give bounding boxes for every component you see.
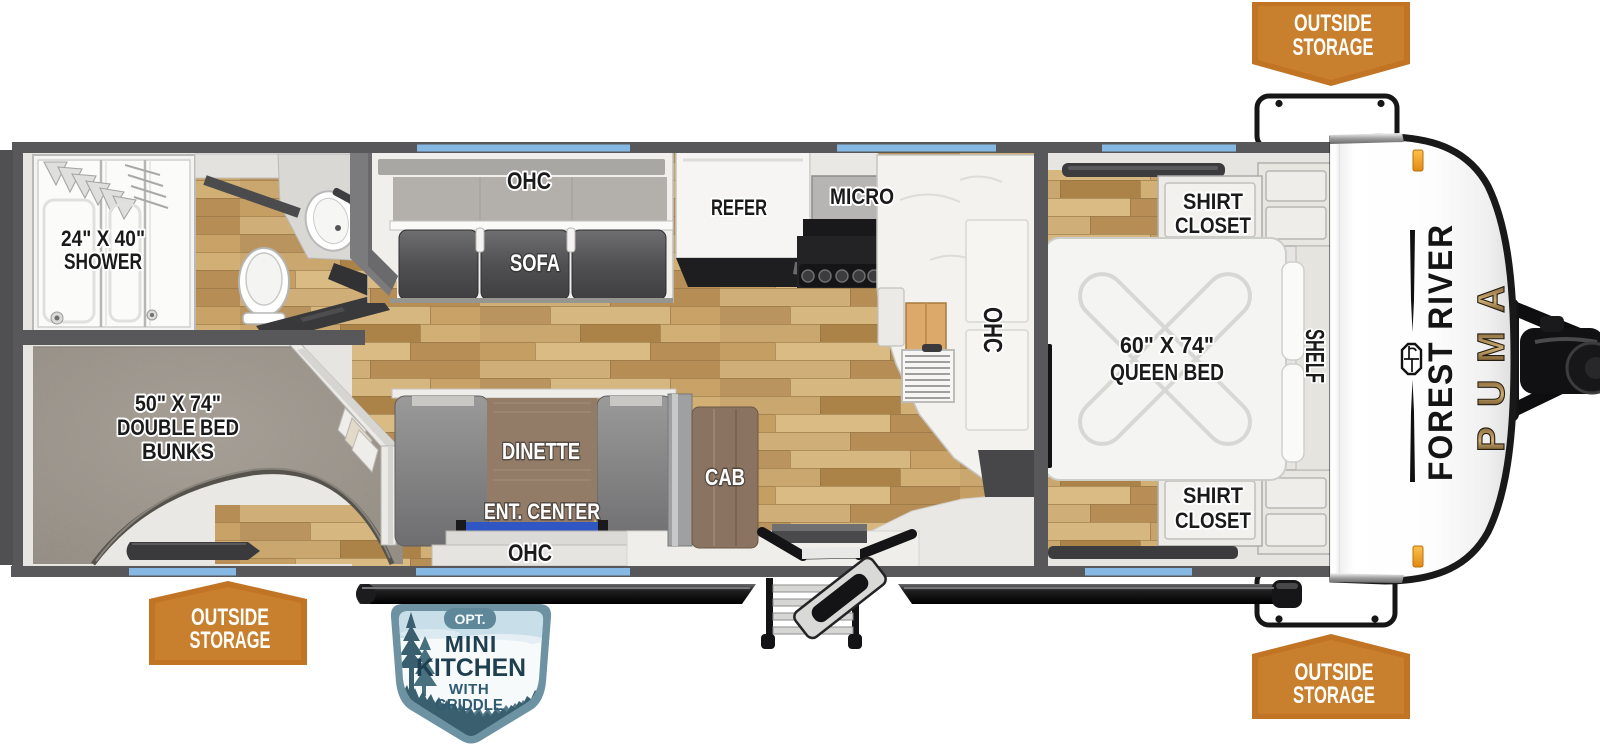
svg-text:CLOSET: CLOSET: [1175, 213, 1251, 238]
svg-text:M: M: [1471, 331, 1513, 363]
svg-text:MICRO: MICRO: [830, 184, 894, 209]
svg-text:DINETTE: DINETTE: [502, 438, 580, 464]
svg-text:STORAGE: STORAGE: [1293, 34, 1374, 61]
svg-text:50" X 74": 50" X 74": [135, 391, 221, 416]
svg-text:GRIDDLE: GRIDDLE: [435, 697, 503, 714]
svg-text:SHELF: SHELF: [1300, 329, 1330, 383]
svg-text:OHC: OHC: [978, 307, 1008, 353]
svg-text:CAB: CAB: [705, 464, 745, 490]
svg-text:STORAGE: STORAGE: [1293, 682, 1375, 709]
svg-text:OPT.: OPT.: [454, 611, 485, 627]
svg-text:P: P: [1471, 427, 1513, 452]
svg-text:OUTSIDE: OUTSIDE: [1294, 10, 1372, 37]
svg-text:DOUBLE BED: DOUBLE BED: [117, 415, 239, 440]
svg-text:24" X 40": 24" X 40": [61, 226, 145, 251]
svg-text:FOREST RIVER: FOREST RIVER: [1422, 223, 1460, 481]
svg-text:SHOWER: SHOWER: [64, 249, 142, 274]
svg-text:BUNKS: BUNKS: [142, 439, 214, 464]
svg-text:OHC: OHC: [508, 540, 552, 567]
svg-text:A: A: [1471, 286, 1513, 313]
svg-text:QUEEN BED: QUEEN BED: [1110, 359, 1224, 385]
svg-text:OHC: OHC: [507, 168, 551, 195]
svg-text:SHIRT: SHIRT: [1183, 189, 1244, 214]
svg-text:SHIRT: SHIRT: [1183, 483, 1244, 508]
svg-text:CLOSET: CLOSET: [1175, 508, 1251, 533]
svg-text:KITCHEN: KITCHEN: [416, 654, 526, 682]
svg-text:60" X 74": 60" X 74": [1120, 332, 1214, 358]
svg-text:ENT. CENTER: ENT. CENTER: [484, 499, 600, 524]
svg-text:STORAGE: STORAGE: [190, 627, 271, 654]
svg-text:SOFA: SOFA: [510, 250, 560, 277]
svg-text:REFER: REFER: [711, 195, 767, 220]
svg-text:WITH: WITH: [449, 681, 489, 698]
svg-text:U: U: [1471, 380, 1513, 407]
